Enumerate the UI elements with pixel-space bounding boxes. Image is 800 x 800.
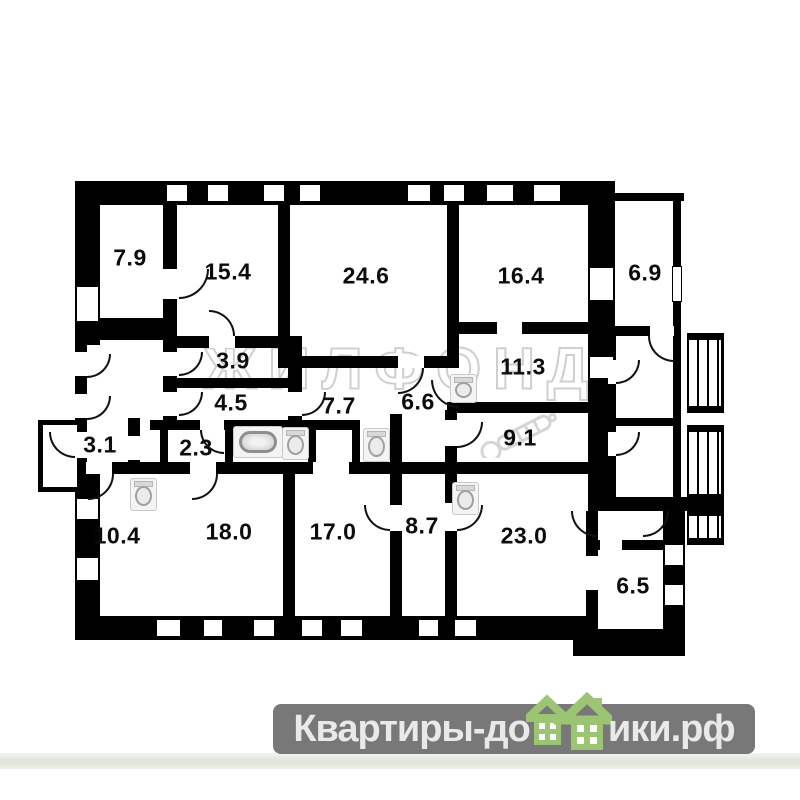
- wall: [663, 505, 685, 629]
- room-area-label: 15.4: [205, 259, 252, 286]
- room-area-label: 10.4: [94, 523, 141, 550]
- room-area-label: 6.9: [628, 260, 661, 287]
- toilet-bowl: [287, 435, 304, 455]
- door-gap: [209, 336, 235, 348]
- doorway-opening: [313, 462, 349, 474]
- door-arc: [88, 474, 114, 500]
- doorway-opening: [586, 556, 598, 590]
- doorway-opening: [600, 540, 622, 550]
- door-gap: [608, 360, 616, 384]
- door-gap: [390, 505, 402, 531]
- window-opening: [252, 618, 276, 638]
- room-area-label: 6.5: [616, 573, 649, 600]
- door-gap: [608, 432, 616, 456]
- window-opening: [165, 183, 189, 203]
- window-opening: [453, 618, 478, 638]
- door-gap: [75, 352, 87, 376]
- bathtub-icon: [233, 426, 283, 458]
- bathtub-basin: [239, 431, 277, 453]
- door-arc: [616, 432, 640, 456]
- wall: [278, 205, 290, 356]
- window-opening: [202, 618, 224, 638]
- room-area-label: 18.0: [206, 519, 253, 546]
- wall: [163, 205, 177, 318]
- door-gap: [398, 356, 424, 368]
- window-opening: [485, 183, 515, 203]
- wall: [673, 193, 681, 505]
- stairs-icon: [687, 333, 724, 413]
- stairs-icon: [687, 425, 724, 501]
- door-arc: [364, 505, 390, 531]
- window-opening: [339, 618, 364, 638]
- door-arc: [87, 396, 111, 420]
- wall: [608, 326, 616, 505]
- door-gap: [163, 352, 177, 376]
- toilet-icon: [452, 482, 479, 515]
- door-gap: [190, 462, 216, 474]
- wall: [608, 418, 681, 426]
- wall: [160, 420, 168, 462]
- window-opening: [406, 183, 432, 203]
- door-gap: [445, 420, 457, 446]
- toilet-icon: [363, 428, 390, 462]
- wall: [352, 420, 360, 462]
- doorway-opening: [497, 322, 522, 334]
- room-area-label: 16.4: [498, 263, 545, 290]
- wall-niche: [590, 268, 613, 300]
- room-area-label: 2.3: [179, 435, 212, 462]
- window-opening: [663, 583, 685, 607]
- door-arc: [571, 511, 597, 537]
- door-arc: [616, 360, 640, 384]
- room-area-label: 6.6: [401, 389, 434, 416]
- toilet-icon: [282, 427, 309, 460]
- wall: [447, 322, 613, 334]
- window-opening: [75, 497, 100, 521]
- window-opening: [532, 183, 562, 203]
- door-gap: [75, 394, 87, 418]
- wall: [573, 629, 685, 656]
- wall: [283, 462, 295, 616]
- footer-logo: Квартиры-до ики.рф: [273, 704, 755, 754]
- room-area-label: 8.7: [405, 513, 438, 540]
- window-opening: [75, 556, 100, 582]
- wall: [278, 356, 459, 368]
- room-area-label: 9.1: [503, 425, 536, 452]
- window-opening: [298, 183, 322, 203]
- wall: [308, 420, 316, 462]
- logo-house-icon: [526, 692, 612, 754]
- room-area-label: 11.3: [500, 354, 546, 381]
- door-arc: [87, 354, 111, 378]
- window-opening: [206, 183, 230, 203]
- door-gap: [288, 392, 302, 416]
- door-arc: [648, 336, 674, 362]
- door-gap: [650, 326, 674, 336]
- logo-text-suffix: ики.рф: [608, 710, 735, 748]
- wall: [177, 378, 288, 388]
- door-gap: [163, 392, 177, 416]
- door-gap: [163, 269, 177, 299]
- room-area-label: 24.6: [343, 263, 390, 290]
- window-opening: [663, 543, 685, 567]
- window-opening: [75, 285, 100, 323]
- door-arc: [209, 310, 235, 336]
- door-arc: [179, 352, 203, 376]
- window-opening: [262, 183, 286, 203]
- door-gap: [200, 420, 224, 430]
- footer-gradient-band: [0, 753, 800, 769]
- doorway-opening: [128, 436, 140, 460]
- logo-text-prefix: Квартиры-до: [293, 710, 530, 748]
- stairs-icon: [687, 509, 724, 545]
- toilet-bowl: [135, 486, 152, 506]
- toilet-bowl: [457, 490, 474, 510]
- wall: [75, 616, 592, 640]
- room-area-label: 3.1: [83, 432, 116, 459]
- door-gap: [86, 462, 112, 474]
- window-opening: [300, 618, 324, 638]
- room-area-label: 23.0: [501, 523, 548, 550]
- wall: [225, 420, 233, 462]
- window-opening: [417, 618, 440, 638]
- room-area-label: 3.9: [216, 348, 249, 375]
- window-opening: [155, 618, 182, 638]
- door-arc: [192, 474, 218, 500]
- toilet-icon: [130, 478, 157, 511]
- room-area-label: 17.0: [310, 519, 357, 546]
- wall: [600, 193, 684, 201]
- door-arc: [179, 392, 203, 416]
- wall: [447, 205, 459, 368]
- room-area-label: 7.9: [113, 245, 146, 272]
- floor-plan-page: ЖИЛФОНД: [0, 0, 800, 800]
- window-opening: [672, 266, 682, 302]
- toilet-bowl: [368, 436, 385, 457]
- room-area-label: 7.7: [322, 393, 355, 420]
- window-opening: [442, 183, 466, 203]
- room-area-label: 4.5: [214, 390, 247, 417]
